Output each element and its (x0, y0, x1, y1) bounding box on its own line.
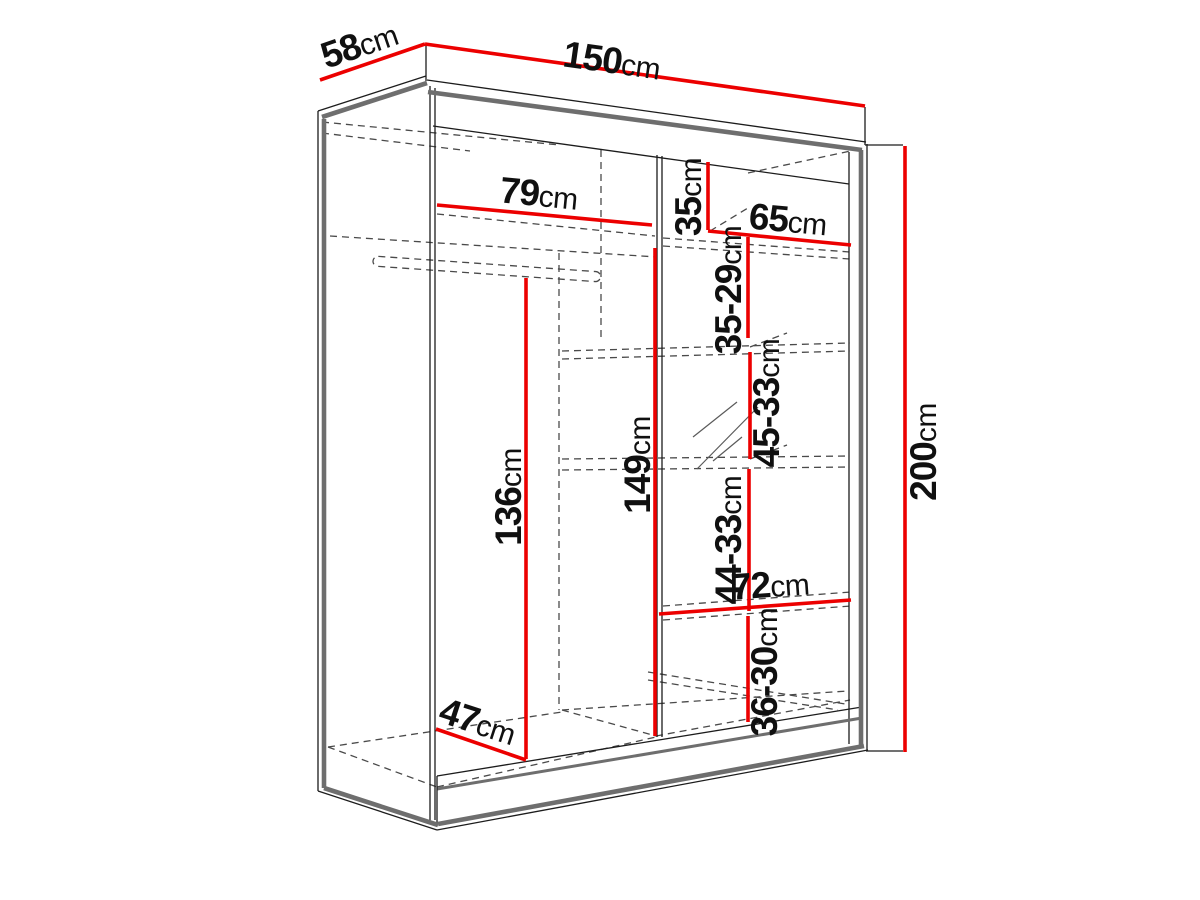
wardrobe-dimension-diagram: 58cm 150cm 200cm 79cm 35cm 65cm 35-29cm … (0, 0, 1200, 900)
dim-label-gap-35: 35cm (668, 158, 709, 236)
dim-label-gap-36-30: 36-30cm (744, 608, 785, 737)
dim-label-width-150: 150cm (561, 33, 663, 87)
dimension-labels: 58cm 150cm 200cm 79cm 35cm 65cm 35-29cm … (316, 12, 944, 753)
dim-label-interior-149: 149cm (617, 416, 658, 514)
dim-label-gap-35-29: 35-29cm (708, 226, 749, 355)
dim-label-gap-45-33: 45-33cm (746, 339, 787, 468)
dim-label-shelf-65: 65cm (747, 196, 828, 244)
dim-label-shelf-72: 72cm (730, 561, 811, 607)
dim-label-shelf-79: 79cm (498, 169, 580, 217)
diagram-canvas: 58cm 150cm 200cm 79cm 35cm 65cm 35-29cm … (0, 0, 1200, 900)
dim-label-height-200: 200cm (903, 403, 944, 501)
extension-lines (426, 44, 903, 751)
hanging-rail (373, 256, 601, 282)
dim-label-hang-136: 136cm (488, 448, 529, 546)
